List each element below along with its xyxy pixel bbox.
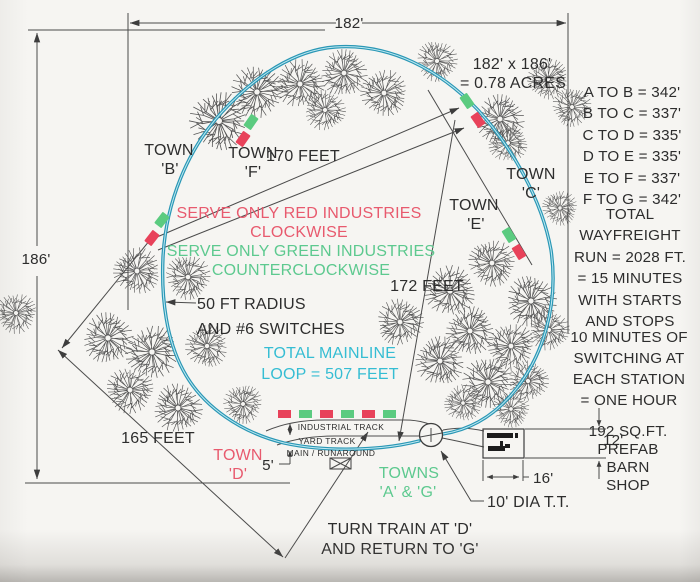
distance-a-b: A TO B = 342' bbox=[584, 84, 681, 101]
tree-icon bbox=[486, 383, 537, 434]
note-mainline-2: LOOP = 507 FEET bbox=[261, 366, 398, 383]
wayfreight-note-3: RUN = 2028 FT. bbox=[574, 249, 686, 266]
tree-icon bbox=[219, 380, 265, 427]
dim-width-label: 182' bbox=[334, 15, 363, 32]
labels: 182' 186' TOWN 'B' TOWN 'F' 170 FEET 182… bbox=[21, 15, 687, 558]
distance-e-f: E TO F = 337' bbox=[584, 170, 681, 187]
town-c-label: TOWN bbox=[506, 166, 555, 183]
note-red-industries-1: SERVE ONLY RED INDUSTRIES bbox=[176, 205, 421, 222]
note-green-industries-1: SERVE ONLY GREEN INDUSTRIES bbox=[167, 243, 436, 260]
tree-icon bbox=[297, 84, 352, 138]
town-d-letter: 'D' bbox=[229, 466, 247, 483]
track-spacing-label: 5' bbox=[262, 457, 274, 474]
boundary-and-dimensions bbox=[25, 13, 568, 558]
tree-icon bbox=[108, 240, 167, 298]
runaround-symbol bbox=[330, 458, 351, 469]
industry-dash-green bbox=[383, 410, 396, 418]
train-car-gap bbox=[513, 433, 515, 438]
tree-icon bbox=[413, 35, 464, 87]
industry-dash-red bbox=[362, 410, 375, 418]
tree-icon bbox=[81, 309, 138, 367]
wayfreight-note-4: = 15 MINUTES bbox=[578, 270, 683, 287]
tree-icon bbox=[461, 230, 526, 295]
note-green-industries-2: COUNTERCLOCKWISE bbox=[212, 262, 390, 279]
tree-icon bbox=[442, 381, 484, 423]
station-marker-green bbox=[501, 227, 516, 244]
barn-note-4: SHOP bbox=[606, 477, 650, 494]
town-e-label: TOWN bbox=[449, 197, 498, 214]
yard-track-label: YARD TRACK bbox=[298, 436, 355, 446]
towns-ag-letters: 'A' & 'G' bbox=[380, 484, 437, 501]
industrial-track-label: INDUSTRIAL TRACK bbox=[298, 422, 384, 432]
barn-width-extension-lines bbox=[483, 460, 523, 481]
area-label-1: 182' x 186' bbox=[473, 56, 552, 73]
station-marker-red bbox=[511, 244, 526, 261]
industry-dash-red bbox=[320, 410, 333, 418]
main-runaround-label: MAIN / RUNAROUND bbox=[287, 448, 376, 458]
track-plan-photo: 182' 186' TOWN 'B' TOWN 'F' 170 FEET 182… bbox=[0, 0, 700, 582]
note-red-industries-2: CLOCKWISE bbox=[250, 224, 348, 241]
locomotive-icon bbox=[488, 441, 510, 451]
chord-corner-label: 165 FEET bbox=[121, 430, 195, 447]
barn-width-label: 16' bbox=[533, 470, 553, 487]
wayfreight-note-1: TOTAL bbox=[606, 206, 655, 223]
note-radius-2: AND #6 SWITCHES bbox=[197, 321, 345, 338]
tree-icon bbox=[117, 317, 190, 389]
switching-note-3: EACH STATION bbox=[573, 371, 685, 388]
track-plan-diagram: 182' 186' TOWN 'B' TOWN 'F' 170 FEET 182… bbox=[0, 0, 700, 582]
industry-dash-red bbox=[278, 410, 291, 418]
turntable-label: 10' DIA T.T. bbox=[487, 494, 570, 511]
wayfreight-note-5: WITH STARTS bbox=[578, 292, 682, 309]
distance-d-e: D TO E = 335' bbox=[583, 148, 681, 165]
tree-icon bbox=[367, 289, 431, 353]
wayfreight-note-2: WAYFREIGHT bbox=[579, 227, 681, 244]
turntable bbox=[420, 424, 443, 447]
switching-note-4: = ONE HOUR bbox=[581, 392, 678, 409]
town-b-letter: 'B' bbox=[161, 161, 178, 178]
tree-icon bbox=[455, 350, 518, 414]
dim-height-label: 186' bbox=[21, 251, 50, 268]
switching-note-2: SWITCHING AT bbox=[574, 350, 685, 367]
wayfreight-note-6: AND STOPS bbox=[585, 313, 674, 330]
industry-dash-green bbox=[299, 410, 312, 418]
barn-note-1: 192 SQ.FT. bbox=[589, 423, 668, 440]
note-turn-2: AND RETURN TO 'G' bbox=[321, 541, 478, 558]
distance-b-c: B TO C = 337' bbox=[583, 105, 681, 122]
barn-note-2: PREFAB bbox=[597, 441, 658, 458]
town-d-label: TOWN bbox=[213, 447, 262, 464]
industry-dash-green bbox=[341, 410, 354, 418]
note-radius-1: 50 FT RADIUS bbox=[197, 296, 306, 313]
barn-note-3: BARN bbox=[607, 459, 650, 476]
towns-ag-label: TOWNS bbox=[379, 465, 439, 482]
note-mainline-1: TOTAL MAINLINE bbox=[264, 345, 396, 362]
barn-lead-track-2 bbox=[442, 438, 484, 447]
radius-leader-arrow bbox=[166, 302, 196, 303]
chord-cd-label: 172 FEET bbox=[390, 278, 464, 295]
distance-c-d: C TO D = 335' bbox=[582, 127, 681, 144]
town-e-letter: 'E' bbox=[467, 216, 484, 233]
turntable-leader-arrow bbox=[441, 451, 484, 501]
tree-icon bbox=[353, 61, 416, 123]
town-f-letter: 'F' bbox=[245, 164, 261, 181]
note-turn-1: TURN TRAIN AT 'D' bbox=[328, 521, 473, 538]
town-b-label: TOWN bbox=[144, 142, 193, 159]
chord-bc-label: 170 FEET bbox=[266, 148, 340, 165]
area-label-2: = 0.78 ACRES bbox=[460, 75, 566, 92]
tree-icon bbox=[0, 291, 40, 337]
town-c-letter: 'C' bbox=[522, 185, 540, 202]
switching-note-1: 10 MINUTES OF bbox=[570, 329, 687, 346]
